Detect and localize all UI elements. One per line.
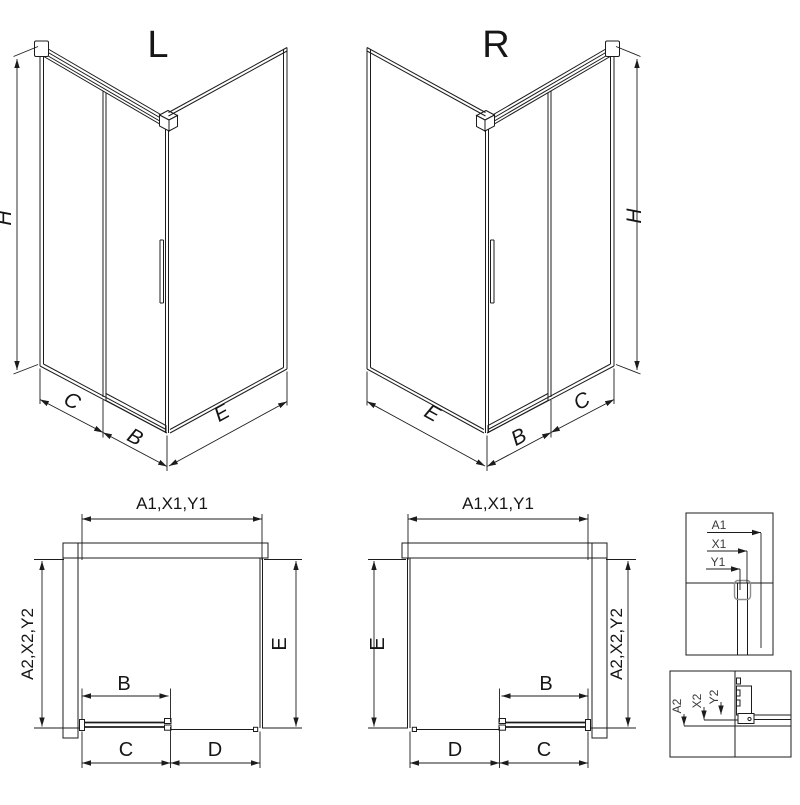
plan-left-dim-top: A1,X1,Y1 bbox=[136, 494, 208, 513]
iso-left-geometry bbox=[14, 41, 288, 471]
plan-left-dim-c: C bbox=[119, 739, 133, 761]
plan-right-geometry bbox=[368, 514, 636, 768]
plan-left-dim-left: A2,X2,Y2 bbox=[18, 608, 37, 680]
iso-view-right: R H C B E bbox=[367, 24, 646, 471]
plan-right-dim-top: A1,X1,Y1 bbox=[462, 494, 534, 513]
detail1-label-x1: X1 bbox=[712, 537, 727, 551]
iso-view-left: L H C B E bbox=[0, 24, 287, 471]
plan-right-dim-right: A2,X2,Y2 bbox=[607, 608, 626, 680]
detail-floor-profile: A2 X2 Y2 bbox=[670, 671, 791, 757]
drawing-canvas: L H C B E R H C B E A1,X1,Y1 A2,X2,Y2 E … bbox=[0, 0, 800, 800]
iso-right-dim-c: C bbox=[570, 387, 595, 415]
plan-right-dim-c: C bbox=[537, 739, 551, 761]
iso-right-dim-b: B bbox=[507, 424, 530, 451]
detail2-label-a2: A2 bbox=[670, 698, 684, 713]
plan-left-dim-b: B bbox=[117, 673, 130, 695]
plan-view-left: A1,X1,Y1 A2,X2,Y2 E B C D bbox=[18, 494, 302, 768]
detail-wall-fixing: A1 X1 Y1 bbox=[686, 513, 773, 655]
detail2-label-x2: X2 bbox=[690, 693, 704, 708]
iso-right-geometry bbox=[367, 41, 641, 471]
iso-right-dim-h: H bbox=[623, 208, 646, 224]
iso-left-title: L bbox=[147, 24, 168, 66]
plan-left-dim-e: E bbox=[269, 637, 291, 650]
plan-right-dim-e: E bbox=[367, 637, 389, 650]
glass-section-hatch bbox=[738, 583, 748, 655]
iso-left-dim-b: B bbox=[123, 424, 146, 451]
plan-view-right: A1,X1,Y1 E A2,X2,Y2 B D C bbox=[367, 494, 636, 768]
iso-left-dim-h: H bbox=[0, 210, 16, 226]
shower-enclosure-technical-drawing: L H C B E R H C B E A1,X1,Y1 A2,X2,Y2 E … bbox=[0, 0, 800, 800]
iso-left-dim-c: C bbox=[60, 388, 85, 416]
detail2-label-y2: Y2 bbox=[707, 689, 721, 704]
profile-section bbox=[737, 678, 755, 724]
plan-left-dim-d: D bbox=[208, 739, 222, 761]
detail1-label-y1: Y1 bbox=[711, 555, 726, 569]
detail1-label-a1: A1 bbox=[712, 518, 727, 532]
plan-right-dim-d: D bbox=[448, 739, 462, 761]
iso-left-dim-e: E bbox=[210, 399, 234, 426]
plan-right-dim-b: B bbox=[539, 673, 552, 695]
iso-right-dim-e: E bbox=[420, 400, 444, 427]
iso-right-title: R bbox=[482, 24, 509, 66]
plan-left-geometry bbox=[34, 514, 302, 768]
